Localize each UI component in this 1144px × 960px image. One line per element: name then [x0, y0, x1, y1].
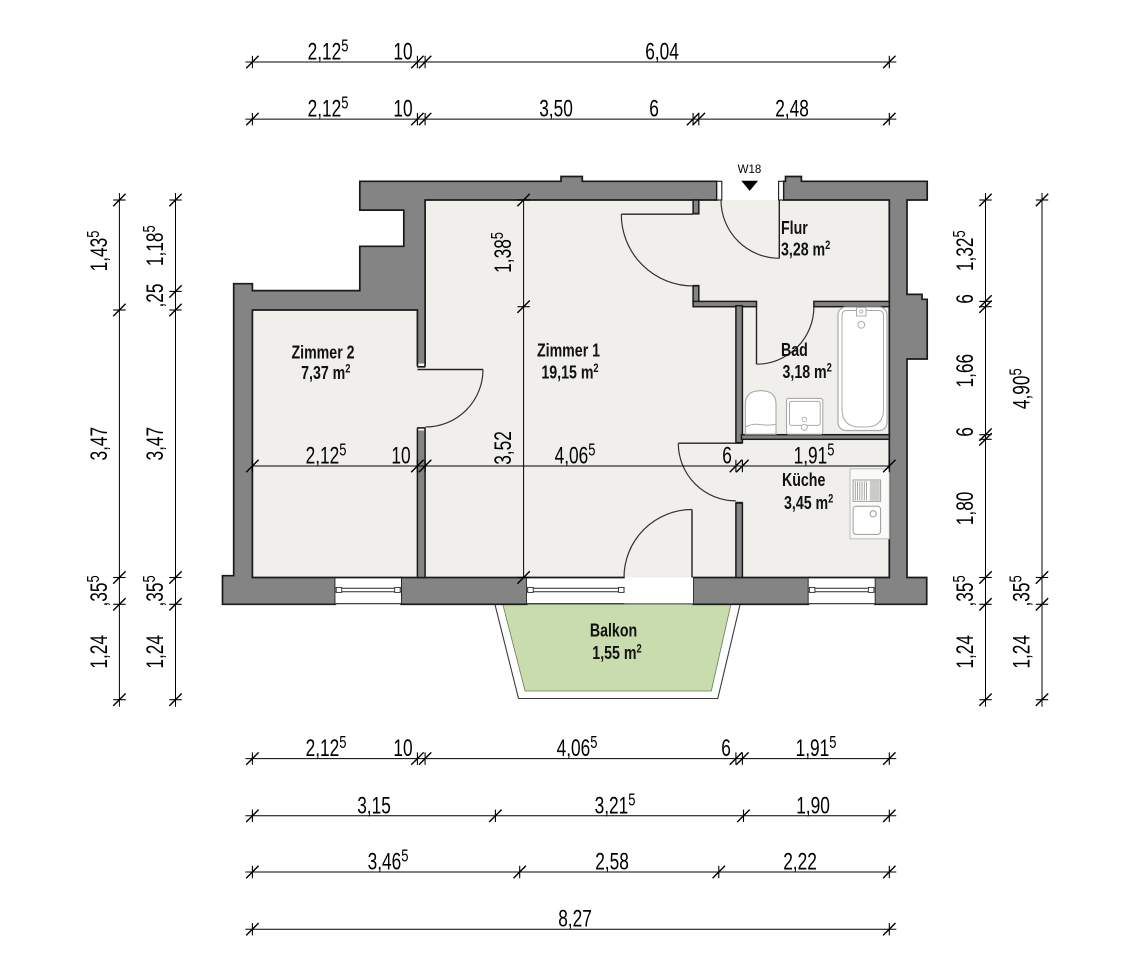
- svg-text:2,125: 2,125: [308, 37, 349, 66]
- svg-text:10: 10: [393, 735, 412, 761]
- svg-text:3,45 m2: 3,45 m2: [784, 492, 833, 513]
- svg-text:1,80: 1,80: [952, 492, 978, 526]
- svg-text:,25: ,25: [142, 283, 168, 307]
- svg-text:3,15: 3,15: [357, 793, 391, 819]
- svg-text:4,905: 4,905: [1007, 368, 1036, 409]
- svg-text:3,50: 3,50: [539, 96, 573, 122]
- svg-text:,355: ,355: [1007, 575, 1036, 606]
- svg-text:2,58: 2,58: [595, 849, 629, 875]
- svg-text:10: 10: [393, 96, 412, 122]
- svg-text:Bad: Bad: [781, 340, 808, 360]
- svg-text:10: 10: [393, 39, 412, 65]
- svg-text:Zimmer 1: Zimmer 1: [537, 341, 600, 361]
- svg-text:7,37 m2: 7,37 m2: [301, 362, 350, 383]
- svg-text:3,52: 3,52: [490, 431, 516, 465]
- svg-text:10: 10: [391, 443, 410, 469]
- svg-text:,355: ,355: [84, 575, 113, 606]
- svg-text:1,915: 1,915: [796, 733, 837, 762]
- svg-text:Flur: Flur: [781, 218, 808, 238]
- svg-text:1,55 m2: 1,55 m2: [592, 642, 641, 663]
- svg-text:,355: ,355: [140, 575, 169, 606]
- svg-text:1,185: 1,185: [140, 225, 169, 266]
- svg-text:1,435: 1,435: [84, 230, 113, 271]
- svg-text:6: 6: [952, 294, 978, 304]
- svg-text:3,28 m2: 3,28 m2: [781, 239, 830, 260]
- svg-text:1,24: 1,24: [86, 635, 112, 669]
- svg-text:1,90: 1,90: [796, 793, 830, 819]
- svg-text:2,125: 2,125: [308, 94, 349, 123]
- svg-text:8,27: 8,27: [558, 906, 592, 932]
- svg-text:6: 6: [722, 443, 732, 469]
- svg-text:2,48: 2,48: [775, 96, 809, 122]
- svg-text:3,47: 3,47: [86, 427, 112, 461]
- svg-text:1,24: 1,24: [1009, 635, 1035, 669]
- svg-text:4,065: 4,065: [557, 733, 598, 762]
- svg-text:1,66: 1,66: [952, 354, 978, 388]
- svg-text:3,47: 3,47: [142, 427, 168, 461]
- svg-text:6: 6: [721, 735, 731, 761]
- svg-text:Balkon: Balkon: [590, 621, 637, 641]
- svg-text:6,04: 6,04: [645, 39, 679, 65]
- svg-text:Küche: Küche: [782, 470, 825, 490]
- svg-text:3,18 m2: 3,18 m2: [783, 361, 832, 382]
- svg-text:3,465: 3,465: [368, 847, 409, 876]
- svg-text:3,215: 3,215: [595, 790, 636, 819]
- svg-text:2,22: 2,22: [783, 849, 817, 875]
- svg-text:W18: W18: [738, 164, 762, 176]
- svg-text:6: 6: [649, 96, 659, 122]
- svg-text:6: 6: [952, 427, 978, 437]
- svg-text:,355: ,355: [950, 575, 979, 606]
- svg-text:1,24: 1,24: [142, 635, 168, 669]
- svg-text:19,15 m2: 19,15 m2: [541, 362, 598, 383]
- svg-text:Zimmer 2: Zimmer 2: [291, 343, 354, 363]
- svg-text:1,24: 1,24: [952, 635, 978, 669]
- svg-text:1,325: 1,325: [950, 230, 979, 271]
- svg-text:2,125: 2,125: [306, 733, 347, 762]
